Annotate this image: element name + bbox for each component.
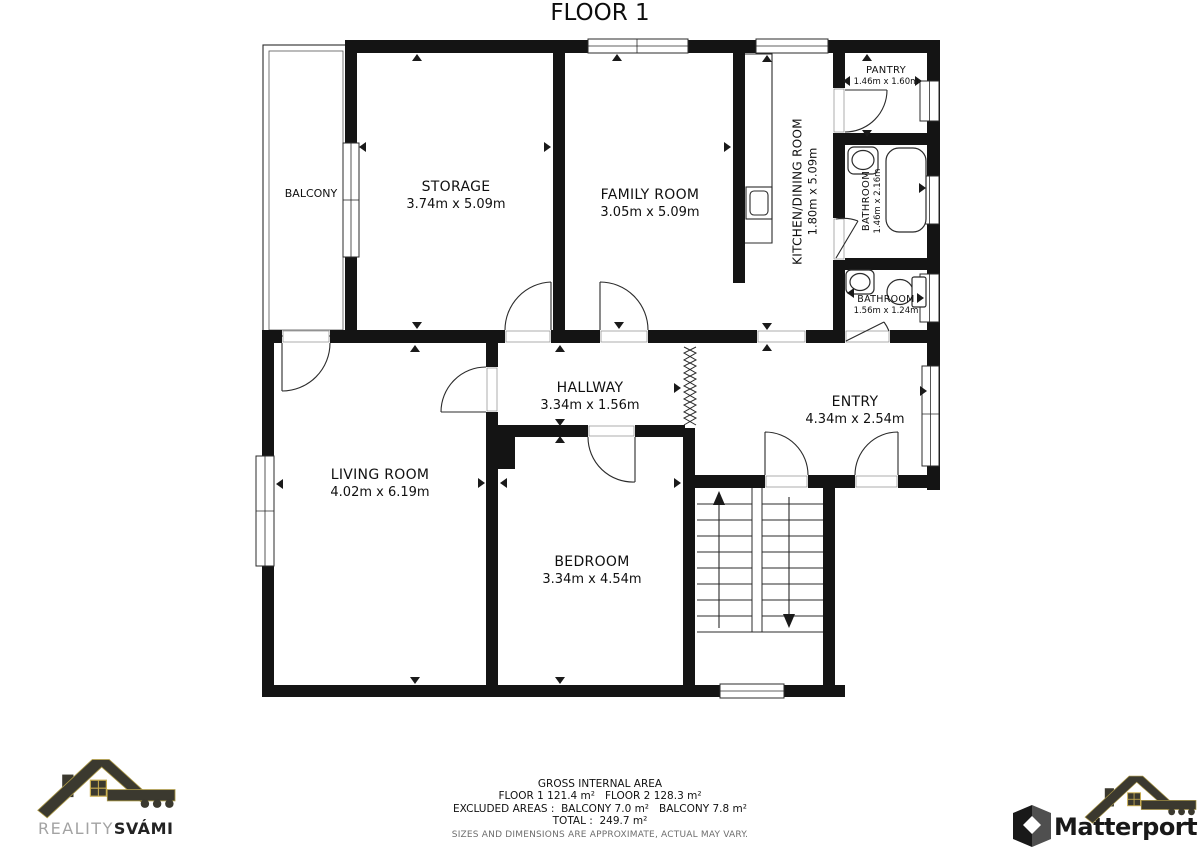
room-label-storage: STORAGE 3.74m x 5.09m bbox=[366, 179, 546, 212]
stairs-down-arrow bbox=[783, 497, 795, 628]
room-dims: 1.80m x 5.09m bbox=[806, 47, 820, 337]
room-dims: 1.56m x 1.24m bbox=[836, 306, 936, 316]
room-name: FAMILY ROOM bbox=[560, 187, 740, 203]
floorplan-drawing: REALITYSVÁMI Matterport bbox=[0, 0, 1200, 849]
room-label-hallway: HALLWAY 3.34m x 1.56m bbox=[505, 380, 675, 413]
room-dims: 1.46m x 1.60m bbox=[836, 77, 936, 87]
excluded-areas-line: EXCLUDED AREAS : BALCONY 7.0 m² BALCONY … bbox=[0, 803, 1200, 815]
room-label-pantry: PANTRY 1.46m x 1.60m bbox=[836, 65, 936, 87]
room-label-bedroom: BEDROOM 3.34m x 4.54m bbox=[502, 554, 682, 587]
floor-areas-line: FLOOR 1 121.4 m² FLOOR 2 128.3 m² bbox=[0, 790, 1200, 802]
room-name: BATHROOM bbox=[836, 294, 936, 305]
room-name: STORAGE bbox=[366, 179, 546, 195]
room-label-entry: ENTRY 4.34m x 2.54m bbox=[770, 394, 940, 427]
room-name: PANTRY bbox=[836, 65, 936, 76]
room-dims: 3.05m x 5.09m bbox=[560, 205, 740, 220]
room-label-bathroom-2: BATHROOM 1.56m x 1.24m bbox=[836, 294, 936, 316]
room-label-family-room: FAMILY ROOM 3.05m x 5.09m bbox=[560, 187, 740, 220]
room-name: HALLWAY bbox=[505, 380, 675, 396]
room-label-balcony: BALCONY bbox=[266, 187, 356, 200]
disclaimer-text: SIZES AND DIMENSIONS ARE APPROXIMATE, AC… bbox=[0, 830, 1200, 840]
bathroom2-sink bbox=[846, 270, 874, 294]
gross-area-label: GROSS INTERNAL AREA bbox=[0, 778, 1200, 790]
room-dims: 3.34m x 1.56m bbox=[505, 398, 675, 413]
room-dims: 3.74m x 5.09m bbox=[366, 197, 546, 212]
room-dims: 4.34m x 2.54m bbox=[770, 412, 940, 427]
kitchen-counter bbox=[745, 54, 772, 243]
walls bbox=[262, 40, 940, 697]
room-dims: 4.02m x 6.19m bbox=[290, 485, 470, 500]
stairs-up-arrow bbox=[713, 491, 725, 628]
floorplan-page: REALITYSVÁMI Matterport BALCONY STORAGE … bbox=[0, 0, 1200, 849]
room-dims: 3.34m x 4.54m bbox=[502, 572, 682, 587]
room-name: ENTRY bbox=[770, 394, 940, 410]
room-label-living-room: LIVING ROOM 4.02m x 6.19m bbox=[290, 467, 470, 500]
room-name: LIVING ROOM bbox=[290, 467, 470, 483]
room-label-kitchen-dining: KITCHEN/DINING ROOM 1.80m x 5.09m bbox=[791, 47, 820, 337]
room-name: BATHROOM bbox=[861, 141, 872, 261]
room-name: KITCHEN/DINING ROOM bbox=[791, 47, 805, 337]
room-label-bathroom-1: BATHROOM 1.46m x 2.16m bbox=[861, 141, 883, 261]
floor-title: FLOOR 1 bbox=[0, 0, 1200, 26]
total-area-line: TOTAL : 249.7 m² bbox=[0, 815, 1200, 827]
room-dims: 1.46m x 2.16m bbox=[873, 141, 883, 261]
staircase bbox=[697, 488, 823, 632]
area-summary: GROSS INTERNAL AREA FLOOR 1 121.4 m² FLO… bbox=[0, 778, 1200, 840]
zigzag-divider bbox=[684, 347, 696, 425]
room-name: BALCONY bbox=[285, 187, 338, 200]
room-name: BEDROOM bbox=[502, 554, 682, 570]
